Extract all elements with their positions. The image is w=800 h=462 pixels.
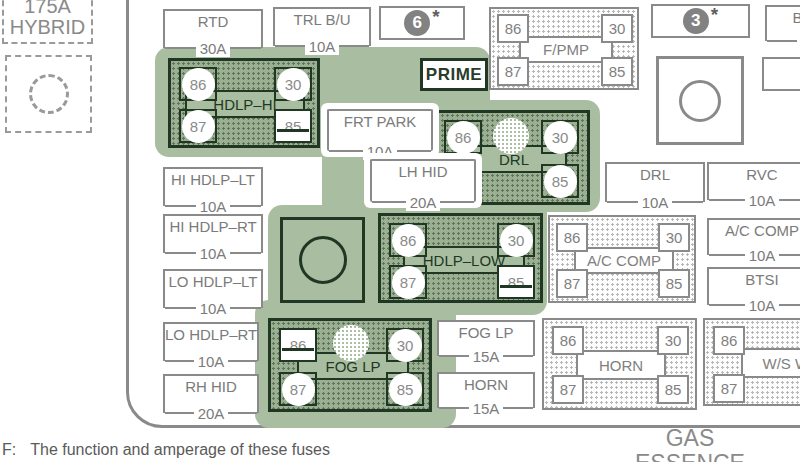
fuse-hi-hdlp-lt: HI HDLP–LT 10A	[163, 167, 263, 206]
amps-row: 15A	[439, 400, 533, 416]
prime-label: PRIME	[426, 65, 482, 85]
dash-line	[165, 307, 196, 309]
amps-row: 10A	[165, 198, 261, 214]
fuse-label: RTD	[165, 11, 261, 30]
amps-row: 15A	[439, 348, 533, 364]
dash-line	[397, 150, 431, 152]
dash-line	[329, 150, 363, 152]
fuse-amps: 30A	[196, 40, 231, 57]
fuse-label: RH HID	[165, 376, 257, 395]
footnote-text: The function and amperage of these fuses	[30, 441, 330, 458]
socket-circle-icon	[679, 80, 721, 122]
fuse-amps: 20A	[194, 405, 229, 422]
amps-row: 10A	[329, 143, 431, 159]
relay-center-hole-icon	[493, 118, 529, 154]
relay-fpmp: F/PMP 86 30 87 85	[489, 7, 639, 90]
circled-number-icon: 3	[683, 8, 709, 34]
numbered-connector-6: 6 *	[379, 6, 465, 40]
numbered-connector-clipped	[762, 57, 800, 91]
fuse-label: RVC	[709, 164, 800, 183]
dash-line	[230, 252, 261, 254]
terminal-87: 87	[279, 372, 317, 406]
terminal-87: 87	[713, 374, 745, 403]
fuse-amps: 10A	[194, 353, 229, 370]
terminal-85: 85	[497, 265, 535, 299]
asterisk: *	[711, 4, 718, 26]
dash-line	[230, 47, 261, 49]
fuse-amps: 15A	[469, 348, 504, 365]
dash-line	[440, 201, 474, 203]
fuse-amps: 10A	[305, 38, 340, 55]
fuse-btsi: BTSI 10A	[707, 267, 800, 305]
amps-row: 10A	[709, 297, 800, 313]
hybrid-amps: 175A	[4, 0, 91, 17]
fuse-bu-clipped: B/U 2	[765, 5, 800, 41]
terminal-30: 30	[541, 120, 579, 154]
amps-row: 30A	[165, 40, 261, 56]
fuse-label: FRT PARK	[329, 111, 431, 130]
relay-label: W/S WASH	[741, 348, 800, 378]
relay-socket	[280, 217, 365, 303]
terminal-87: 87	[389, 265, 427, 299]
fuse-amps: 10A	[745, 297, 780, 314]
fuse-amps: 10A	[638, 194, 673, 211]
dash-line	[779, 254, 800, 256]
dash-line	[165, 412, 194, 414]
dash-line	[230, 205, 261, 207]
dash-line	[439, 355, 469, 357]
fuel-type-gas: GAS	[600, 426, 780, 451]
terminal-86: 86	[713, 326, 745, 355]
fuse-lh-hid: LH HID 20A	[370, 159, 476, 202]
socket-circle-icon	[299, 236, 347, 284]
terminal-87: 87	[556, 269, 588, 298]
terminal-85: 85	[541, 164, 579, 198]
fuse-label: LH HID	[372, 161, 474, 180]
terminal-86: 86	[497, 14, 529, 43]
fuse-amps: 10A	[745, 247, 780, 264]
dash-line	[339, 45, 369, 47]
amps-row: 20A	[372, 194, 474, 210]
relay-hdlp-hi: HDLP–HI 86 30 87 85	[168, 58, 320, 148]
fuse-label: FOG LP	[439, 322, 533, 341]
amps-row: 10A	[165, 245, 261, 261]
fuse-label: A/C COMP	[709, 220, 800, 239]
terminal-85: 85	[386, 372, 424, 406]
amps-row: 10A	[709, 247, 800, 263]
dash-line	[767, 40, 797, 42]
dash-line	[779, 304, 800, 306]
fuel-type-caption: GAS ESSENCE	[600, 426, 780, 462]
dash-line	[230, 307, 261, 309]
fuse-trl-bu: TRL B/U 10A	[273, 7, 371, 46]
dash-line	[372, 201, 406, 203]
dash-line	[709, 254, 745, 256]
terminal-30: 30	[658, 223, 690, 252]
fuse-ac-comp: A/C COMP 10A	[707, 218, 800, 255]
fuse-frt-park: FRT PARK 10A	[327, 109, 433, 151]
fuse-label: HI HDLP–LT	[165, 169, 261, 188]
dashed-circle-icon	[29, 74, 69, 114]
relay-fog-lp: FOG LP 86 30 87 85	[268, 318, 432, 412]
terminal-87: 87	[497, 57, 529, 86]
fuse-lo-hdlp-lt: LO HDLP–LT 10A	[163, 269, 263, 308]
fuse-amps: 15A	[469, 400, 504, 417]
hybrid-socket-box	[5, 55, 92, 133]
dash-line	[228, 412, 257, 414]
hybrid-name: HYBRID	[4, 17, 91, 38]
hybrid-fuse-label: 175A HYBRID	[4, 0, 91, 38]
terminal-86: 86	[389, 223, 427, 257]
footnote: F:The function and amperage of these fus…	[2, 441, 330, 459]
fuse-rh-hid: RH HID 20A	[163, 374, 259, 413]
terminal-86: 86	[444, 120, 482, 154]
relay-center-hole-icon	[333, 325, 369, 361]
relay-ac-comp: A/C COMP 86 30 87 85	[548, 215, 696, 303]
terminal-30: 30	[274, 67, 312, 101]
amps-row: 10A	[165, 353, 257, 369]
terminal-87: 87	[552, 375, 584, 404]
amps-row: 10A	[607, 194, 703, 210]
circled-number-icon: 6	[404, 10, 430, 36]
footnote-prefix: F:	[2, 441, 16, 458]
dash-line	[503, 407, 533, 409]
dash-line	[672, 201, 703, 203]
fuse-label: BTSI	[709, 269, 800, 288]
terminal-86: 86	[279, 328, 317, 362]
terminal-30: 30	[386, 328, 424, 362]
dash-line	[607, 201, 638, 203]
terminal-86: 86	[552, 326, 584, 355]
dash-line	[503, 355, 533, 357]
fuse-label: LO HDLP–RT	[165, 324, 257, 343]
terminal-87: 87	[179, 109, 217, 143]
dash-line	[165, 360, 194, 362]
dash-line	[165, 47, 196, 49]
terminal-86: 86	[179, 67, 217, 101]
hybrid-fuse-label-box: 175A HYBRID	[2, 0, 93, 44]
terminal-85: 85	[658, 269, 690, 298]
dash-line	[709, 304, 745, 306]
prime-connector: PRIME	[420, 58, 488, 91]
fuse-label: TRL B/U	[275, 9, 369, 28]
fuse-amps: 10A	[196, 198, 231, 215]
fuse-label: HI HDLP–RT	[165, 216, 261, 235]
dash-line	[275, 45, 305, 47]
fuel-type-essence: ESSENCE	[600, 451, 780, 462]
terminal-30: 30	[657, 326, 689, 355]
fuse-hi-hdlp-rt: HI HDLP–RT 10A	[163, 214, 263, 253]
dash-line	[709, 199, 745, 201]
amps-row: 10A	[275, 38, 369, 54]
fuse-lo-hdlp-rt: LO HDLP–RT 10A	[163, 322, 259, 361]
dash-line	[165, 205, 196, 207]
amps-row: 20A	[165, 405, 257, 421]
amps-row: 2	[767, 33, 800, 49]
fuse-horn: HORN 15A	[437, 372, 535, 408]
dash-line	[228, 360, 257, 362]
terminal-30: 30	[601, 14, 633, 43]
fuse-fog-lp: FOG LP 15A	[437, 320, 535, 356]
dash-line	[439, 407, 469, 409]
asterisk: *	[432, 6, 439, 28]
fuse-label: DRL	[607, 164, 703, 183]
terminal-85: 85	[274, 109, 312, 143]
terminal-86: 86	[556, 223, 588, 252]
terminal-85: 85	[601, 57, 633, 86]
fuse-rtd: RTD 30A	[163, 9, 263, 48]
dash-line	[165, 252, 196, 254]
relay-socket	[656, 56, 744, 145]
terminal-30: 30	[497, 223, 535, 257]
relay-label: HORN	[576, 350, 666, 380]
fuse-amps: 10A	[745, 192, 780, 209]
relay-hdlp-low: HDLP–LOW 86 30 87 85	[378, 213, 543, 303]
relay-horn: HORN 86 30 87 85	[542, 318, 697, 410]
fuse-label: HORN	[439, 374, 533, 393]
fuse-label: B/U	[767, 7, 800, 26]
fuse-rvc: RVC 10A	[707, 162, 800, 200]
amps-row: 10A	[709, 192, 800, 208]
fuse-label: LO HDLP–LT	[165, 271, 261, 290]
fuse-amps: 10A	[196, 245, 231, 262]
fuse-amps: 20A	[406, 194, 441, 211]
amps-row: 10A	[165, 300, 261, 316]
relay-ws-wash: W/S WASH 86 87	[703, 318, 800, 406]
dash-line	[779, 199, 800, 201]
fuse-amps: 10A	[363, 143, 398, 160]
relay-label: F/PMP	[519, 36, 613, 63]
numbered-connector-3: 3 *	[651, 4, 750, 38]
fuse-drl: DRL 10A	[605, 162, 705, 202]
terminal-85: 85	[657, 375, 689, 404]
fuse-amps: 10A	[196, 300, 231, 317]
